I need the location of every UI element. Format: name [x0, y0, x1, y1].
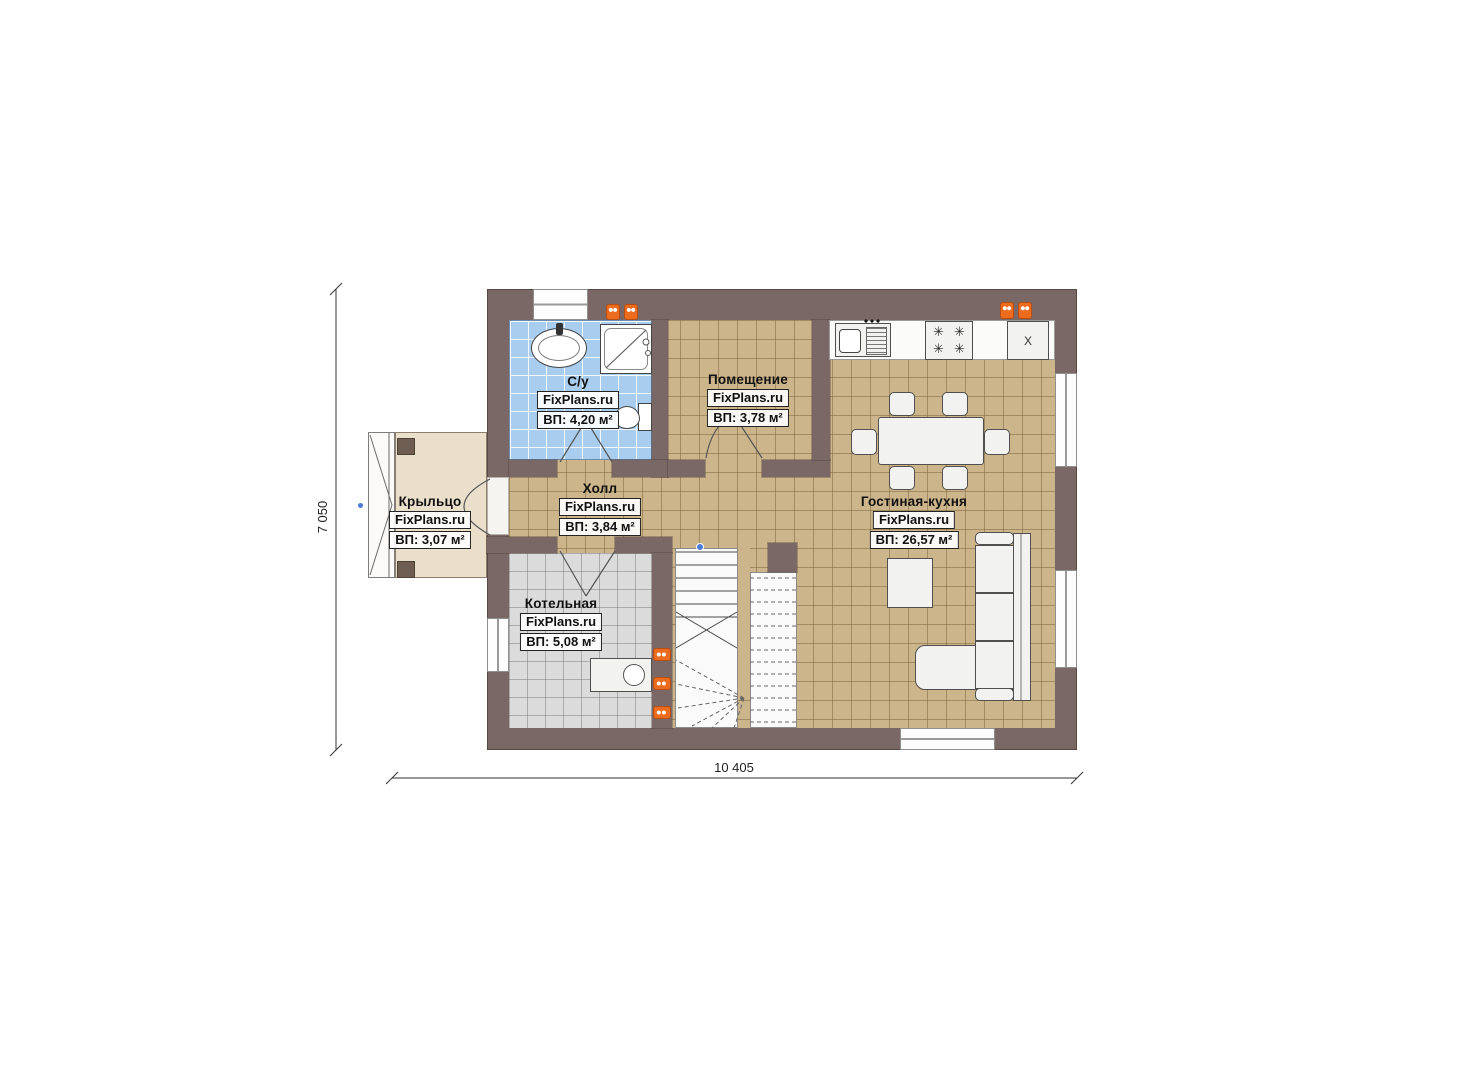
sofa-cushion: [975, 593, 1014, 641]
sofa-cushion: [975, 545, 1014, 593]
entry-door-opening: [487, 477, 509, 535]
stair-flight-up: [750, 572, 797, 728]
sink-faucet: [556, 323, 563, 335]
room-area: ВП: 3,07 м²: [389, 531, 471, 549]
room-name: Холл: [559, 481, 641, 496]
dimension-width: 10 405: [699, 760, 769, 775]
wall-hall-bottom-right: [615, 537, 672, 553]
room-name: Крыльцо: [389, 494, 471, 509]
sofa-armrest-top: [975, 532, 1014, 545]
sink-bowl: [839, 329, 861, 353]
window-bottom-living: [900, 728, 995, 750]
room-label-boiler: Котельная FixPlans.ru ВП: 5,08 м²: [520, 596, 602, 651]
wall-bathroom-bottom-left: [509, 460, 557, 477]
burner-icon: [949, 324, 970, 341]
dining-chair: [889, 392, 915, 416]
sofa-armrest-bottom: [975, 688, 1014, 701]
sink-basin: [538, 335, 580, 361]
stair-center-stringer: [738, 548, 750, 690]
dining-chair: [942, 466, 968, 490]
window-right-lower: [1055, 570, 1077, 668]
fridge-label: X: [1024, 334, 1032, 348]
room-area: ВП: 4,20 м²: [537, 411, 619, 429]
boiler-unit: [590, 658, 652, 692]
burner-icon: [949, 341, 970, 358]
porch-post-bottom: [397, 561, 415, 578]
kitchen-sink-unit: [835, 323, 891, 357]
radiator-icon: [653, 706, 671, 719]
window-right-upper: [1055, 373, 1077, 467]
window-left-boiler: [487, 618, 509, 672]
burner-icon: [928, 324, 949, 341]
coffee-table: [887, 558, 933, 608]
boiler-dial: [623, 664, 645, 686]
fridge: X: [1007, 321, 1049, 360]
stove: [925, 321, 973, 360]
room-area: ВП: 3,78 м²: [707, 409, 789, 427]
radiator-icon: [653, 648, 671, 661]
radiator-icon: [1018, 302, 1032, 319]
wall-utility-bottom-left: [668, 460, 705, 477]
room-label-living: Гостиная-кухня FixPlans.ru ВП: 26,57 м²: [861, 494, 967, 549]
wall-boiler-right: [652, 553, 672, 728]
brand-tag: FixPlans.ru: [873, 511, 955, 529]
dining-table: [878, 417, 984, 465]
brand-tag: FixPlans.ru: [707, 389, 789, 407]
brand-tag: FixPlans.ru: [559, 498, 641, 516]
dining-chair: [889, 466, 915, 490]
sofa-backrest: [1013, 533, 1031, 701]
wall-hall-bottom-left: [487, 537, 557, 553]
brand-tag: FixPlans.ru: [520, 613, 602, 631]
sofa-cushion: [975, 641, 1014, 689]
brand-tag: FixPlans.ru: [389, 511, 471, 529]
room-label-utility: Помещение FixPlans.ru ВП: 3,78 м²: [707, 372, 789, 427]
room-name: Помещение: [707, 372, 789, 387]
window-top-bathroom: [533, 289, 588, 320]
room-name: С/у: [537, 374, 619, 389]
room-label-bathroom: С/у FixPlans.ru ВП: 4,20 м²: [537, 374, 619, 429]
room-area: ВП: 5,08 м²: [520, 633, 602, 651]
toilet-tank: [638, 403, 652, 431]
porch-post-top: [397, 438, 415, 455]
room-name: Котельная: [520, 596, 602, 611]
shower-cabin: [600, 324, 652, 374]
dimension-height: 7 050: [315, 497, 331, 537]
stair-flight-down: [675, 548, 738, 728]
wall-stair-stub: [768, 543, 797, 572]
brand-tag: FixPlans.ru: [537, 391, 619, 409]
room-name: Гостиная-кухня: [861, 494, 967, 509]
room-area: ВП: 26,57 м²: [870, 531, 959, 549]
porch-marker-icon: [358, 503, 363, 508]
radiator-icon: [624, 304, 638, 320]
radiator-icon: [653, 677, 671, 690]
dining-chair: [851, 429, 877, 455]
floor-plan-page: X: [0, 0, 1474, 1080]
radiator-icon: [1000, 302, 1014, 319]
room-label-hall: Холл FixPlans.ru ВП: 3,84 м²: [559, 481, 641, 536]
wall-utility-right: [812, 320, 830, 460]
room-area: ВП: 3,84 м²: [559, 518, 641, 536]
dining-chair: [984, 429, 1010, 455]
stove-burners: [928, 324, 970, 357]
wall-bathroom-bottom-right: [612, 460, 668, 477]
wall-bathroom-utility: [652, 320, 668, 477]
radiator-icon: [606, 304, 620, 320]
room-label-porch: Крыльцо FixPlans.ru ВП: 3,07 м²: [389, 494, 471, 549]
dining-chair: [942, 392, 968, 416]
wall-utility-bottom-right: [762, 460, 830, 477]
bathroom-sink: [531, 328, 587, 368]
sink-drainer: [866, 327, 887, 355]
burner-icon: [928, 341, 949, 358]
shower-tray: [604, 328, 648, 370]
